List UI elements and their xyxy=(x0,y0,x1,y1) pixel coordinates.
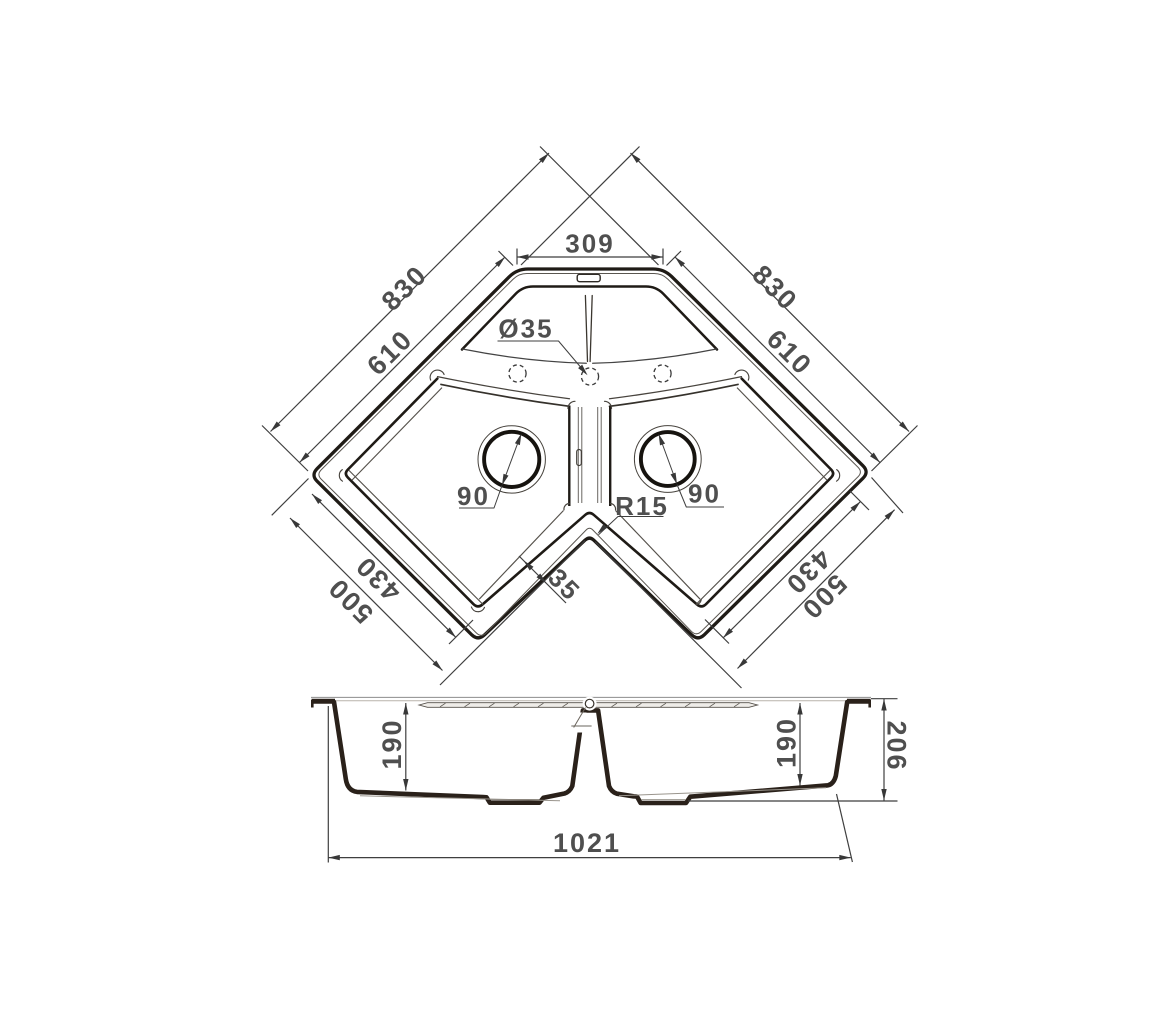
svg-text:206: 206 xyxy=(882,720,912,771)
svg-text:190: 190 xyxy=(377,718,407,769)
svg-text:90: 90 xyxy=(457,481,490,511)
svg-text:309: 309 xyxy=(565,229,614,259)
svg-text:190: 190 xyxy=(772,717,802,768)
svg-text:1021: 1021 xyxy=(553,828,621,858)
svg-text:R15: R15 xyxy=(615,491,669,521)
svg-text:Ø35: Ø35 xyxy=(498,314,553,344)
svg-text:90: 90 xyxy=(688,479,721,509)
